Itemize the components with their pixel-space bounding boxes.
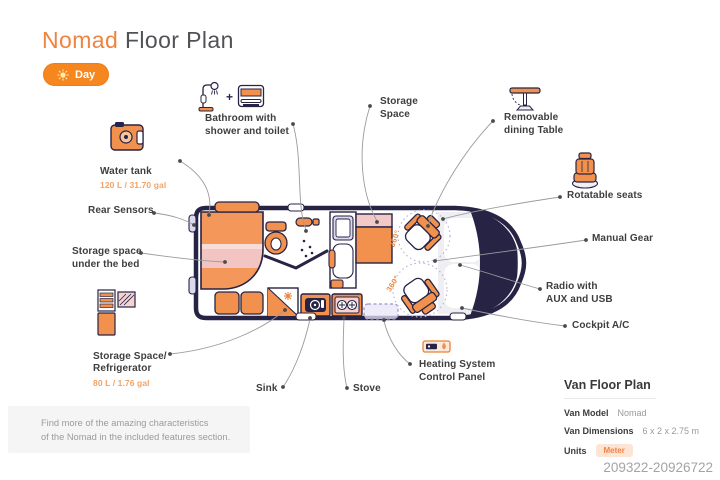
shower-icon [198, 81, 222, 112]
dining-table-label: Removable dining Table [504, 112, 563, 137]
manual-gear-label: Manual Gear [592, 233, 653, 246]
units-row: Units Meter [564, 444, 699, 457]
van-info-title: Van Floor Plan [564, 378, 699, 392]
water-tank-label: Water tank 120 L / 31.70 gal [100, 153, 166, 204]
stove-label: Stove [353, 383, 381, 396]
under-bed-storage [215, 292, 263, 314]
water-tank-icon [109, 121, 151, 153]
refrigerator-capacity: 80 L / 1.76 gal [93, 378, 167, 389]
seat-icon [571, 152, 599, 189]
bathroom-label: Bathroom with shower and toilet [205, 113, 289, 138]
van-model-row: Van Model Nomad [564, 408, 699, 418]
snowflake-mark [284, 292, 292, 300]
radio-label: Radio with AUX and USB [546, 281, 613, 306]
refrigerator-icon-wrap [97, 289, 137, 336]
water-tank-icon-wrap [109, 121, 151, 153]
van-info-panel: Van Floor Plan Van Model Nomad Van Dimen… [564, 378, 699, 465]
refrigerator-label-text: Storage Space/ Refrigerator [93, 351, 167, 375]
rotatable-seats-label: Rotatable seats [567, 190, 642, 203]
water-tank-label-text: Water tank [100, 166, 152, 177]
watermark-number: 209322-20926722 [603, 460, 713, 475]
cockpit-ac-label: Cockpit A/C [572, 320, 629, 333]
wardrobe [329, 212, 356, 288]
van-dimensions-row: Van Dimensions 6 x 2 x 2.75 m [564, 426, 699, 436]
van-model-key: Van Model [564, 408, 609, 418]
water-tank-capacity: 120 L / 31.70 gal [100, 180, 166, 191]
divider [564, 398, 656, 399]
info-box-text: Find more of the amazing characteristics… [41, 416, 230, 444]
rear-roof-storage [215, 202, 259, 212]
plus-sign: + [226, 91, 233, 103]
dining-table-icon-wrap [505, 85, 545, 113]
toilet-icon [237, 84, 265, 109]
bathroom-icons: + [198, 81, 265, 112]
heating-panel-location [364, 304, 398, 319]
rear-sensors-label: Rear Sensors [88, 205, 154, 218]
storage-space-bench [356, 214, 392, 263]
van-model-value: Nomad [618, 408, 647, 418]
nomad-floor-plan-page: Nomad Floor Plan Day [0, 0, 720, 480]
units-badge[interactable]: Meter [596, 444, 633, 457]
van-body [189, 202, 524, 321]
refrigerator-label: Storage Space/ Refrigerator 80 L / 1.76 … [93, 338, 167, 401]
heating-panel-icon [422, 339, 452, 355]
heating-label: Heating System Control Panel [419, 359, 495, 384]
info-box: Find more of the amazing characteristics… [8, 406, 250, 453]
units-key: Units [564, 446, 587, 456]
storage-under-bed-label: Storage space under the bed [72, 246, 142, 271]
refrigerator-icon [97, 289, 137, 336]
heating-icon-wrap [422, 339, 452, 355]
stove-unit [332, 294, 362, 316]
van-dimensions-key: Van Dimensions [564, 426, 634, 436]
seat-icon-wrap [571, 152, 599, 189]
sink-label: Sink [256, 383, 278, 396]
dining-table-icon [505, 85, 545, 113]
storage-space-label: Storage Space [380, 96, 418, 121]
van-dimensions-value: 6 x 2 x 2.75 m [643, 426, 700, 436]
